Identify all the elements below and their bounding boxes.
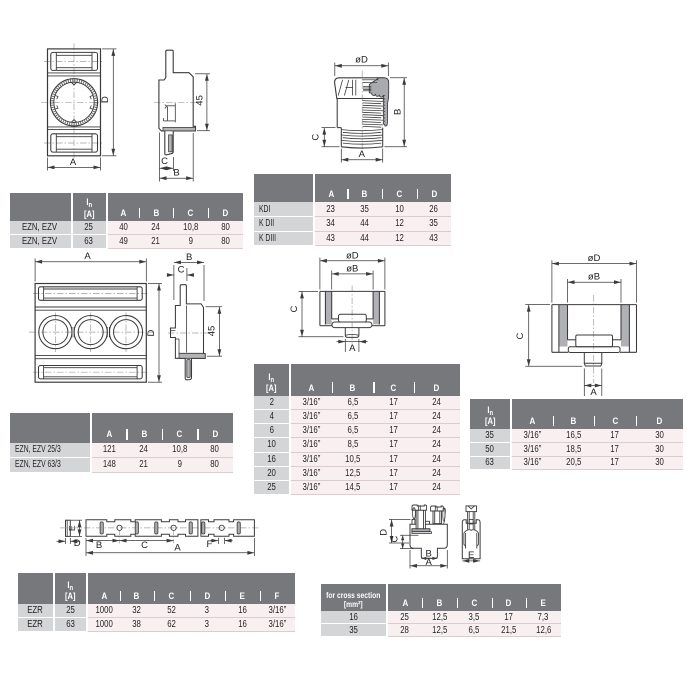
svg-text:øD: øD bbox=[588, 253, 601, 264]
svg-text:45: 45 bbox=[207, 326, 218, 337]
svg-text:A: A bbox=[359, 149, 366, 160]
svg-text:D: D bbox=[100, 96, 111, 103]
svg-text:C: C bbox=[289, 306, 300, 313]
svg-text:øB: øB bbox=[588, 272, 600, 283]
svg-text:E: E bbox=[468, 550, 474, 561]
svg-text:C: C bbox=[390, 536, 401, 543]
svg-text:C: C bbox=[141, 540, 148, 551]
svg-text:øD: øD bbox=[355, 55, 368, 66]
svg-text:C: C bbox=[178, 265, 185, 276]
svg-text:C: C bbox=[311, 134, 322, 141]
svg-text:A: A bbox=[349, 343, 356, 354]
svg-text:A: A bbox=[174, 543, 181, 554]
svg-text:D: D bbox=[379, 529, 390, 536]
svg-text:D: D bbox=[74, 538, 81, 549]
svg-text:A: A bbox=[84, 251, 91, 262]
svg-text:C: C bbox=[515, 332, 526, 339]
svg-text:B: B bbox=[173, 168, 179, 179]
svg-text:B: B bbox=[96, 540, 102, 551]
svg-text:D: D bbox=[146, 329, 157, 336]
svg-text:F: F bbox=[206, 539, 212, 550]
svg-text:B: B bbox=[392, 109, 403, 115]
svg-text:45: 45 bbox=[194, 95, 205, 106]
svg-text:øD: øD bbox=[346, 250, 359, 261]
svg-text:A: A bbox=[590, 387, 597, 398]
svg-text:A: A bbox=[70, 157, 77, 168]
svg-text:øB: øB bbox=[346, 263, 358, 274]
svg-text:B: B bbox=[186, 252, 192, 263]
svg-text:C: C bbox=[161, 156, 168, 167]
svg-text:A: A bbox=[426, 557, 433, 568]
